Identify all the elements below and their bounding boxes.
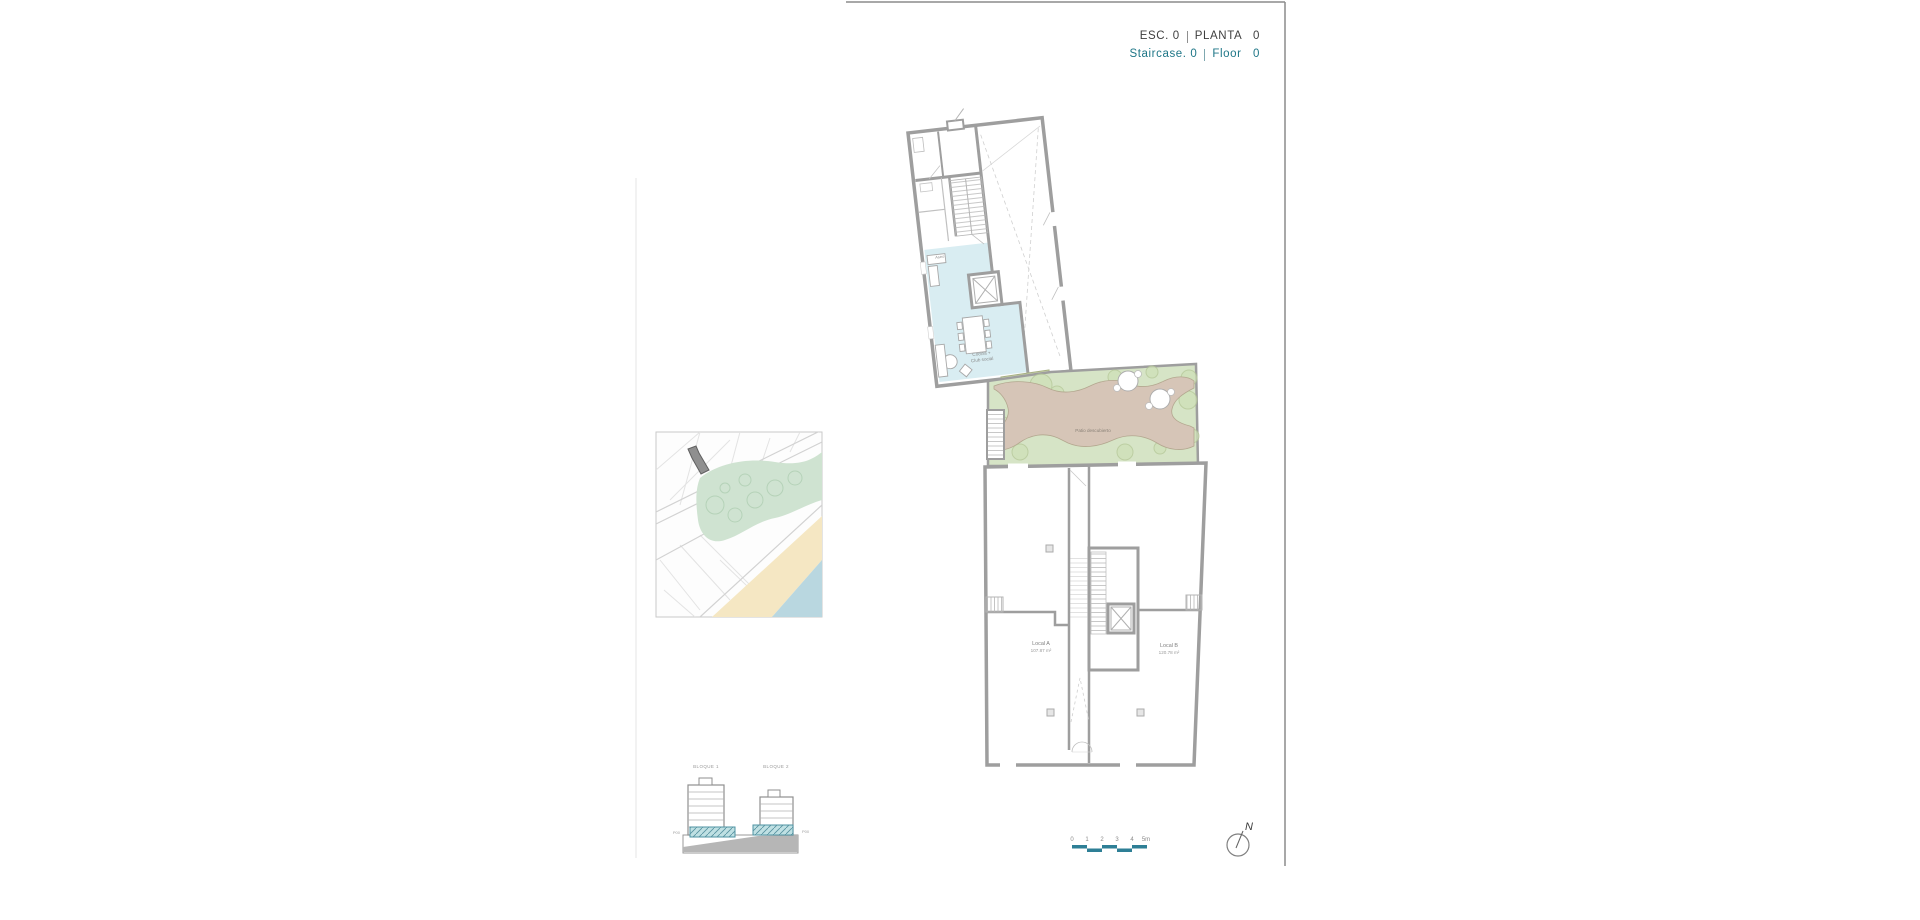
title-row-english: Staircase. 0 Floor 0	[1129, 46, 1260, 64]
patio-descubierto-label: Patio descubierto	[1075, 428, 1111, 433]
core-elevator-icon	[1108, 604, 1134, 633]
bloque1-building	[688, 778, 735, 837]
upper-building: Aseo Cocina + Club social	[903, 100, 1073, 387]
bloque2-label: BLOQUE 2	[763, 764, 789, 769]
scale-tick-3: 3	[1115, 837, 1119, 843]
upper-elevator-icon	[968, 272, 1002, 308]
scale-tick-5: 5m	[1142, 837, 1150, 843]
floor-label: Floor 0	[1212, 46, 1260, 64]
title-divider	[1187, 31, 1188, 43]
local-a-name: Local A	[1032, 641, 1050, 647]
scale-tick-2: 2	[1100, 837, 1104, 843]
garden-patio: Patio descubierto	[987, 364, 1199, 466]
north-label: N	[1245, 821, 1253, 833]
floor-plan-drawing: Aseo Cocina + Club social Patio cubierto	[0, 0, 1920, 920]
esc-label: ESC. 0	[1140, 28, 1180, 46]
plan-sheet: Aseo Cocina + Club social Patio cubierto	[0, 0, 1920, 920]
local-a-area: 107.87 m²	[1031, 648, 1052, 653]
local-b-area: 120.78 m²	[1159, 650, 1180, 655]
title-divider-teal	[1204, 49, 1205, 61]
paved-area	[994, 377, 1194, 450]
scale-tick-4: 4	[1130, 837, 1134, 843]
lower-building: Local A 107.87 m² Local B 120.78 m²	[985, 462, 1206, 768]
local-b-name: Local B	[1160, 643, 1178, 649]
north-compass: N	[1227, 821, 1253, 856]
scale-tick-0: 0	[1070, 837, 1074, 843]
elevation-diagram: BLOQUE 1 BLOQUE 2	[673, 764, 810, 853]
scale-bar: 0 1 2 3 4 5m	[1070, 837, 1150, 852]
garden-stair-icon	[987, 410, 1004, 459]
p00-left-label: P00	[673, 830, 681, 835]
bloque2-building	[753, 790, 793, 835]
bloque1-label: BLOQUE 1	[693, 764, 719, 769]
title-block: ESC. 0 PLANTA 0 Staircase. 0 Floor 0	[1129, 28, 1260, 64]
p00-right-label: P00	[802, 829, 810, 834]
planta-label: PLANTA 0	[1195, 28, 1260, 46]
compass-circle	[1227, 834, 1249, 856]
title-row-spanish: ESC. 0 PLANTA 0	[1129, 28, 1260, 46]
scale-tick-1: 1	[1085, 837, 1089, 843]
location-map	[656, 430, 822, 617]
staircase-label: Staircase. 0	[1129, 46, 1197, 64]
